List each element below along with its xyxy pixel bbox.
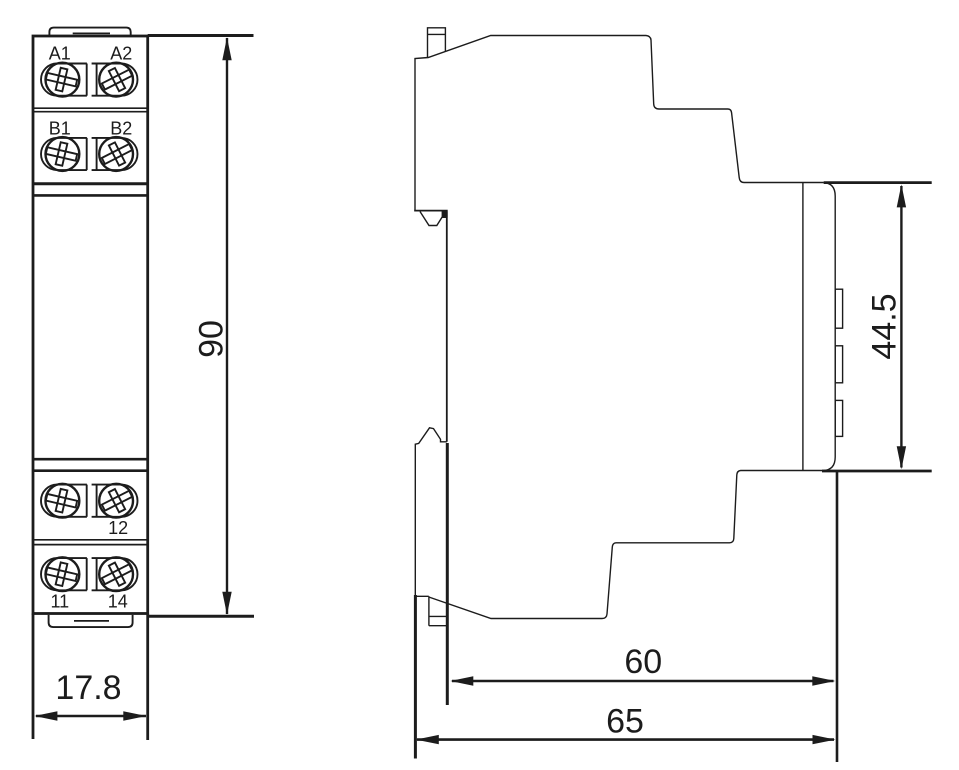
svg-text:17.8: 17.8: [55, 669, 121, 707]
svg-text:90: 90: [193, 320, 231, 358]
svg-text:60: 60: [624, 643, 662, 681]
svg-text:14: 14: [108, 592, 128, 612]
svg-text:12: 12: [108, 518, 128, 538]
svg-text:65: 65: [606, 702, 644, 740]
svg-text:A2: A2: [110, 43, 132, 63]
svg-text:11: 11: [50, 592, 69, 612]
svg-text:44.5: 44.5: [866, 293, 904, 359]
svg-text:B2: B2: [110, 119, 132, 139]
svg-text:B1: B1: [49, 119, 71, 139]
svg-text:A1: A1: [49, 43, 71, 63]
